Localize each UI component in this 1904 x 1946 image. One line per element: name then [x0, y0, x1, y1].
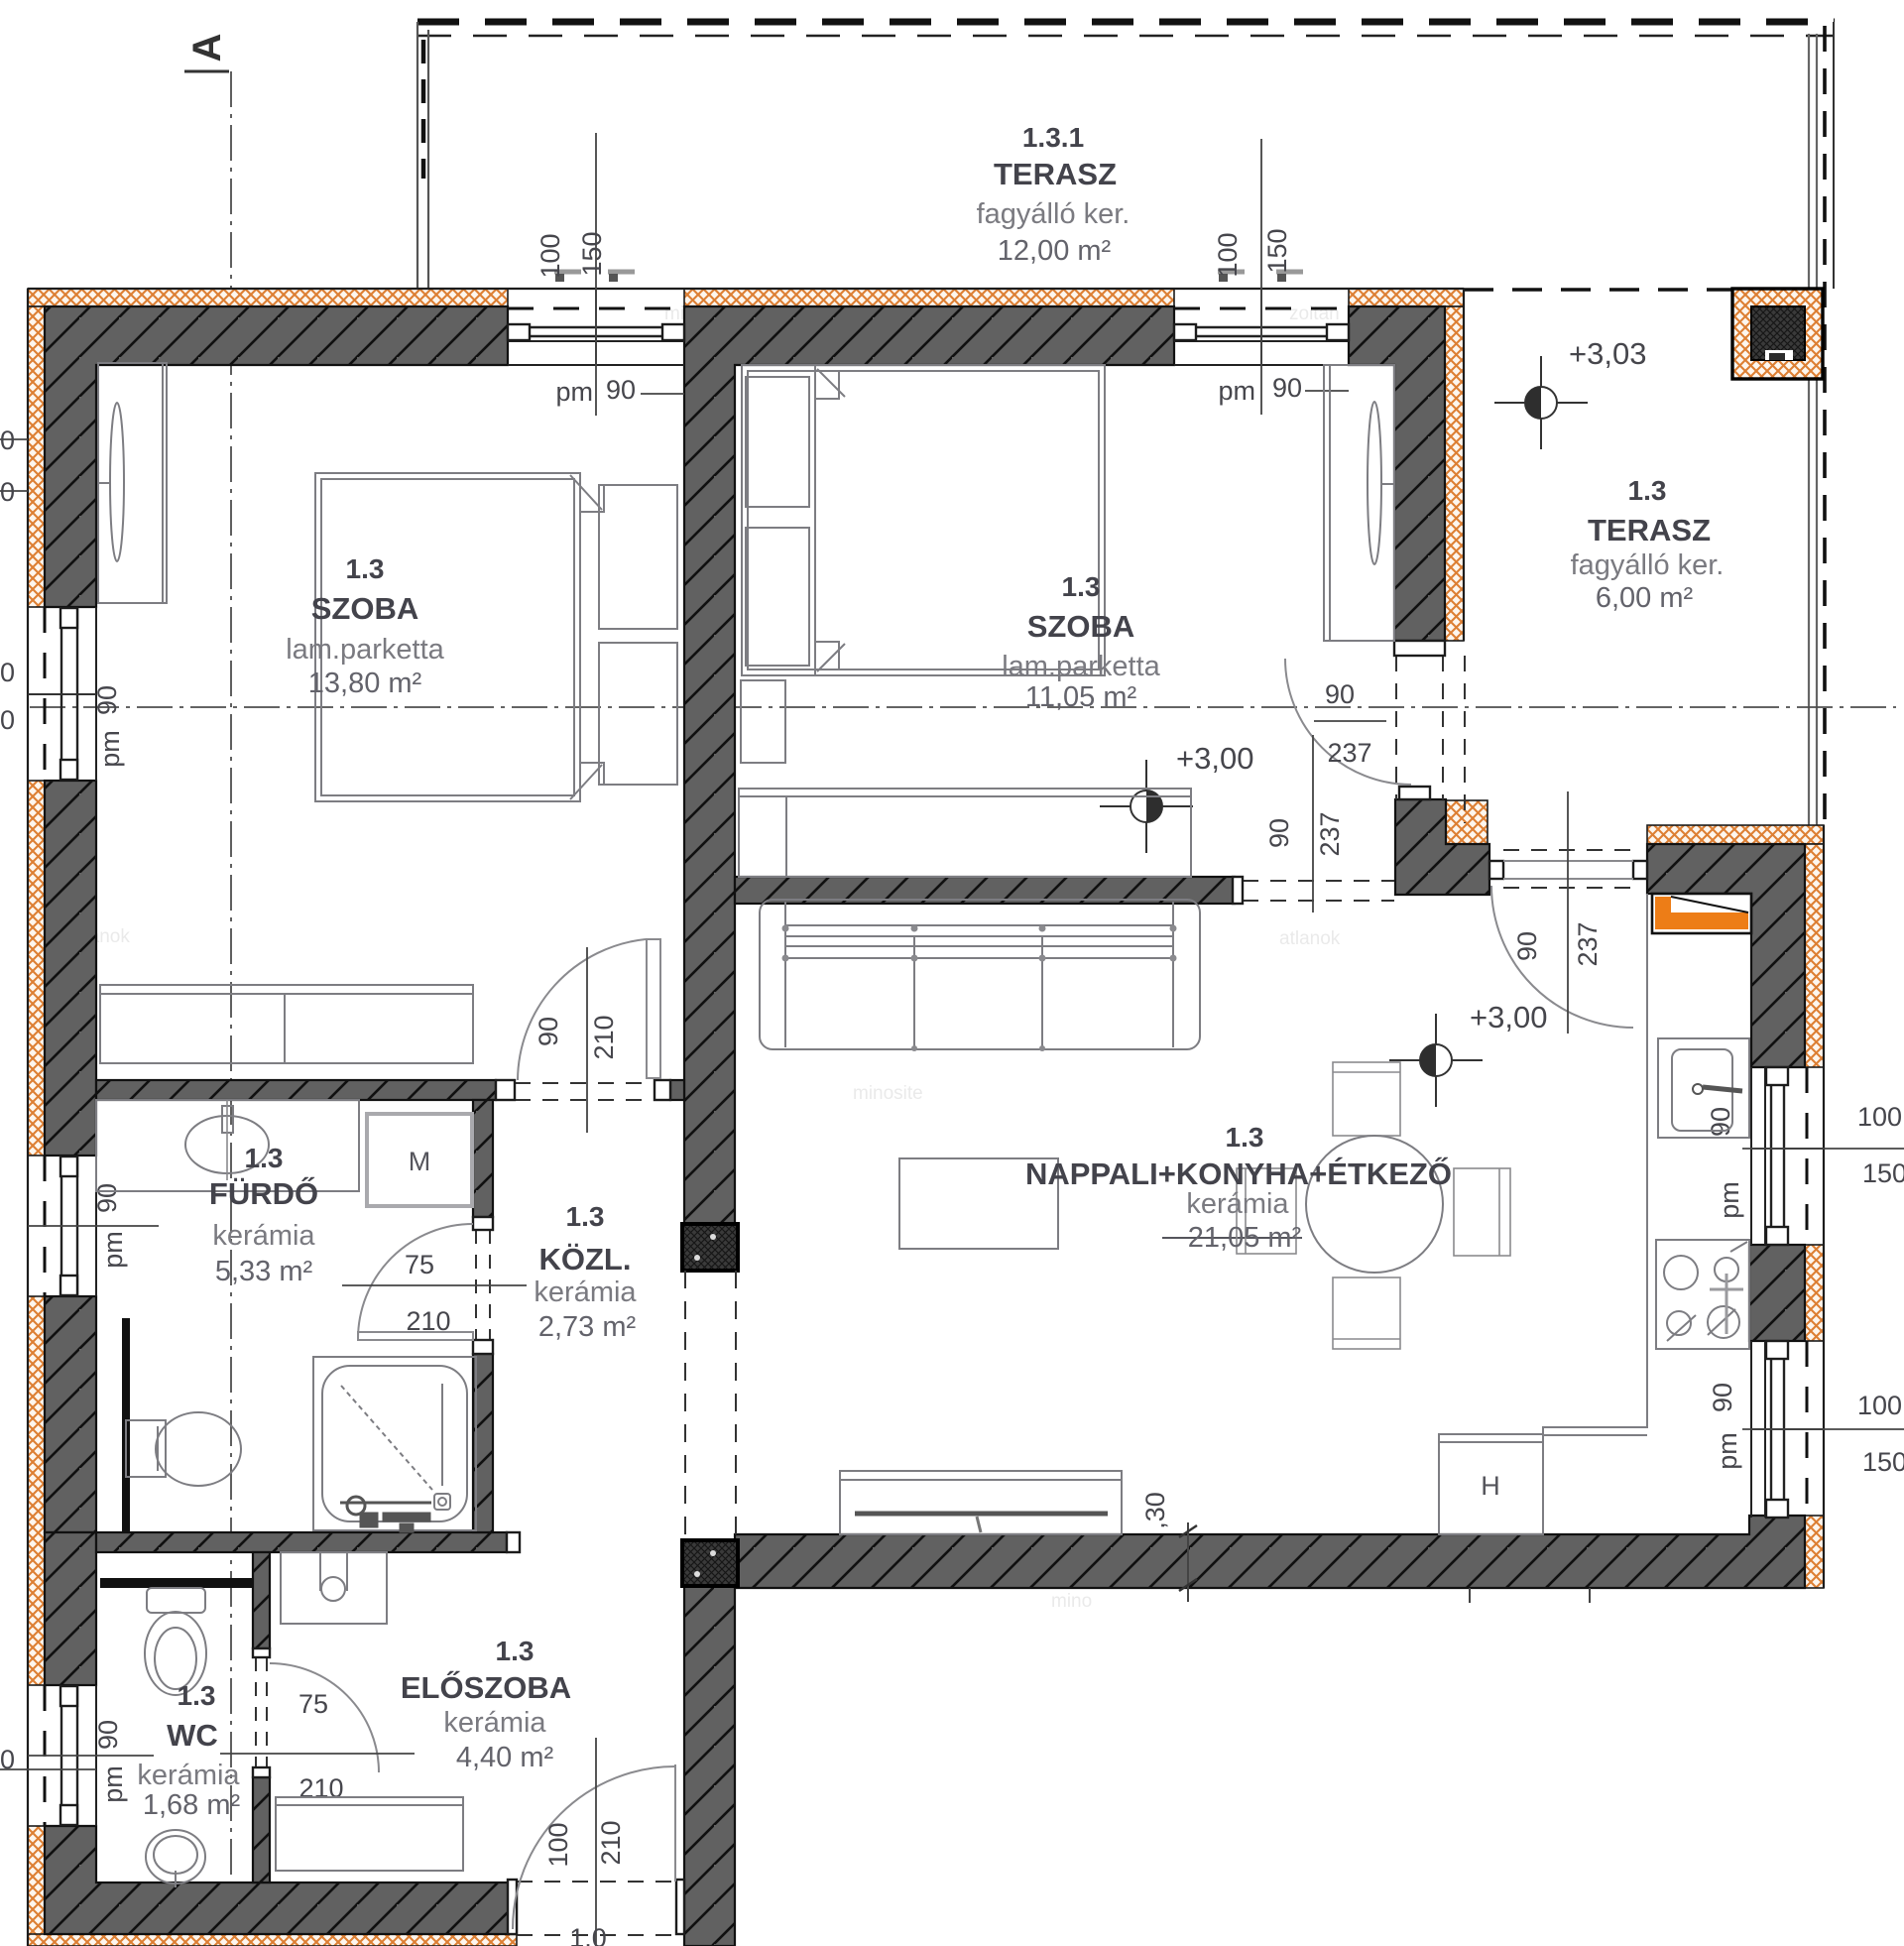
svg-text:FÜRDŐ: FÜRDŐ — [209, 1175, 318, 1211]
svg-text:100: 100 — [543, 1822, 573, 1867]
svg-text:SZOBA: SZOBA — [311, 591, 419, 626]
svg-text:1.3: 1.3 — [1062, 571, 1101, 602]
svg-text:150: 150 — [1262, 228, 1292, 273]
svg-text:1.3: 1.3 — [566, 1201, 605, 1232]
svg-text:pm: pm — [1713, 1432, 1742, 1470]
svg-text:0: 0 — [0, 658, 15, 687]
svg-text:kerámia: kerámia — [137, 1760, 240, 1791]
svg-text:12,00 m²: 12,00 m² — [998, 235, 1112, 267]
svg-text:zoltan: zoltan — [1289, 304, 1340, 324]
svg-text:lam.parketta: lam.parketta — [1002, 651, 1160, 682]
svg-text:kerámia: kerámia — [443, 1707, 546, 1739]
svg-text:150: 150 — [577, 231, 607, 276]
svg-text:237: 237 — [1573, 921, 1603, 966]
svg-text:210: 210 — [589, 1015, 619, 1059]
svg-text:H: H — [1481, 1471, 1500, 1501]
svg-text:4,40 m²: 4,40 m² — [456, 1742, 554, 1773]
svg-text:fagyálló ker.: fagyálló ker. — [1571, 549, 1725, 581]
svg-text:1.3.1: 1.3.1 — [1022, 122, 1084, 153]
svg-text:KÖZL.: KÖZL. — [539, 1242, 632, 1277]
svg-text:210: 210 — [406, 1306, 450, 1336]
svg-text:pm: pm — [1715, 1181, 1744, 1219]
svg-text:100: 100 — [1213, 232, 1243, 277]
svg-text:pm: pm — [98, 1765, 128, 1803]
svg-text:minosite: minosite — [853, 1083, 923, 1104]
svg-text:90: 90 — [93, 1720, 123, 1750]
svg-text:1,0: 1,0 — [569, 1923, 607, 1946]
svg-text:90: 90 — [1512, 931, 1542, 961]
svg-text:ELŐSZOBA: ELŐSZOBA — [401, 1669, 571, 1705]
svg-text:1.3: 1.3 — [346, 553, 385, 584]
svg-text:90: 90 — [1325, 679, 1355, 709]
svg-text:100: 100 — [535, 233, 565, 278]
svg-text:90: 90 — [1706, 1107, 1735, 1137]
svg-text:kerámia: kerámia — [212, 1220, 315, 1252]
svg-text:+3,00: +3,00 — [1470, 1000, 1547, 1034]
svg-text:SZOBA: SZOBA — [1027, 609, 1135, 644]
svg-text:0: 0 — [0, 1745, 15, 1774]
svg-text:pm: pm — [1218, 376, 1255, 406]
svg-text:kerámia: kerámia — [534, 1277, 637, 1308]
svg-text:WC: WC — [167, 1718, 218, 1753]
svg-text:11,05 m²: 11,05 m² — [1025, 681, 1137, 713]
svg-text:210: 210 — [596, 1820, 626, 1865]
svg-text:90: 90 — [1708, 1383, 1737, 1412]
svg-text:237: 237 — [1327, 738, 1371, 768]
svg-text:A: A — [185, 34, 229, 62]
svg-text:0: 0 — [0, 477, 15, 507]
svg-text:TERASZ: TERASZ — [994, 157, 1117, 191]
svg-text:fagyálló ker.: fagyálló ker. — [977, 198, 1130, 230]
svg-text:21,05 m²: 21,05 m² — [1188, 1222, 1302, 1254]
svg-text:6,00 m²: 6,00 m² — [1596, 582, 1694, 614]
svg-text:75: 75 — [405, 1250, 434, 1279]
svg-text:1.3: 1.3 — [178, 1680, 216, 1711]
svg-text:210: 210 — [298, 1773, 343, 1803]
svg-text:90: 90 — [92, 685, 122, 715]
svg-text:0: 0 — [0, 705, 15, 735]
svg-text:5,33 m²: 5,33 m² — [215, 1256, 313, 1287]
svg-text:+3,00: +3,00 — [1176, 741, 1253, 776]
svg-text:150: 150 — [1862, 1158, 1904, 1188]
svg-text:150: 150 — [1862, 1447, 1904, 1477]
svg-text:100: 100 — [1857, 1102, 1902, 1132]
svg-text:1.3: 1.3 — [245, 1143, 284, 1173]
svg-text:75: 75 — [298, 1689, 328, 1719]
svg-text:90: 90 — [534, 1017, 563, 1046]
svg-text:1.3: 1.3 — [496, 1636, 535, 1666]
svg-text:TERASZ: TERASZ — [1588, 513, 1711, 547]
svg-text:NAPPALI+KONYHA+ÉTKEZŐ: NAPPALI+KONYHA+ÉTKEZŐ — [1025, 1155, 1452, 1191]
svg-text:pm: pm — [95, 730, 125, 768]
svg-text:237: 237 — [1315, 811, 1345, 856]
svg-text:pm: pm — [98, 1231, 128, 1269]
svg-text:atlanok: atlanok — [1279, 928, 1341, 949]
svg-text:2,73 m²: 2,73 m² — [538, 1311, 637, 1343]
svg-text:kerámia: kerámia — [1186, 1188, 1289, 1220]
svg-text:90: 90 — [606, 375, 636, 405]
svg-text:,30: ,30 — [1140, 1492, 1170, 1529]
svg-text:0: 0 — [0, 426, 15, 455]
svg-text:lam.parketta: lam.parketta — [286, 634, 444, 666]
svg-text:1,68 m²: 1,68 m² — [143, 1789, 241, 1821]
svg-text:100: 100 — [1857, 1391, 1902, 1420]
svg-text:mino: mino — [1051, 1591, 1092, 1612]
svg-text:+3,03: +3,03 — [1569, 336, 1646, 371]
svg-text:1.3: 1.3 — [1226, 1122, 1264, 1153]
svg-text:90: 90 — [1272, 373, 1302, 403]
svg-text:13,80 m²: 13,80 m² — [308, 668, 422, 699]
svg-text:1.3: 1.3 — [1628, 475, 1667, 506]
svg-text:90: 90 — [1264, 818, 1294, 848]
svg-text:pm: pm — [555, 377, 593, 407]
svg-text:M: M — [409, 1147, 431, 1176]
